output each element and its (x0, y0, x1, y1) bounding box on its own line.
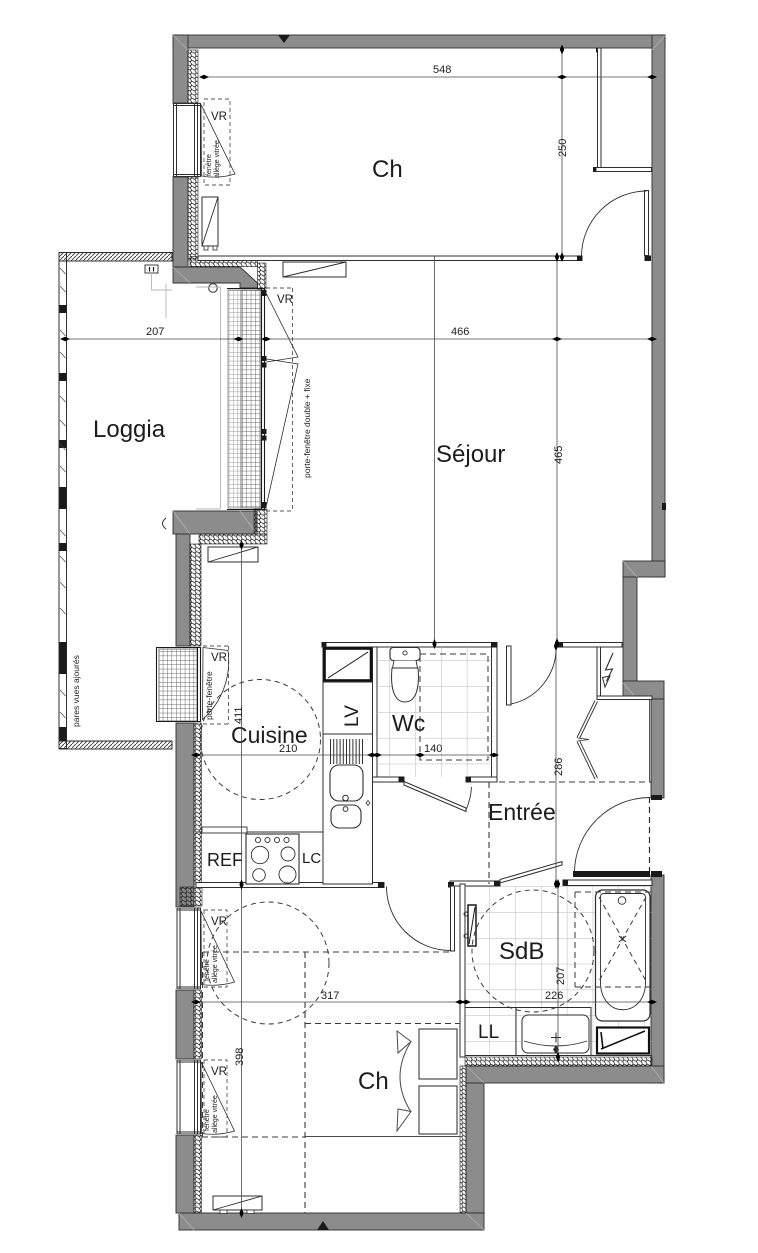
svg-text:140: 140 (424, 743, 442, 755)
svg-text:porte-fenêtre double + fixe: porte-fenêtre double + fixe (302, 378, 312, 478)
svg-text:LL: LL (478, 1022, 499, 1043)
svg-text:allège vitrée: allège vitrée (212, 945, 219, 983)
svg-text:465: 465 (553, 446, 565, 464)
svg-text:fenêtre: fenêtre (206, 154, 213, 176)
svg-text:pares vues ajourés: pares vues ajourés (71, 655, 81, 727)
svg-text:207: 207 (555, 967, 567, 985)
svg-text:LV: LV (342, 705, 363, 727)
svg-text:Loggia: Loggia (93, 416, 166, 443)
svg-text:286: 286 (553, 758, 565, 776)
svg-text:VR: VR (211, 916, 227, 928)
svg-text:VR: VR (211, 652, 227, 664)
svg-text:Ch: Ch (372, 156, 403, 183)
svg-text:VR: VR (277, 294, 293, 306)
svg-text:398: 398 (234, 1048, 246, 1066)
svg-text:Wc: Wc (392, 710, 425, 736)
svg-text:250: 250 (557, 139, 569, 157)
svg-text:allège vitrée: allège vitrée (212, 1095, 219, 1133)
svg-text:548: 548 (433, 64, 451, 76)
svg-text:VR: VR (211, 1066, 227, 1078)
svg-text:210: 210 (279, 743, 297, 755)
svg-text:226: 226 (545, 990, 563, 1002)
svg-text:Entrée: Entrée (488, 799, 556, 825)
svg-text:411: 411 (233, 706, 245, 724)
svg-text:allège vitrée: allège vitrée (214, 140, 221, 178)
svg-text:fenêtre: fenêtre (204, 1109, 211, 1131)
svg-text:317: 317 (321, 990, 339, 1002)
svg-text:Ch: Ch (358, 1068, 389, 1095)
svg-text:REF: REF (207, 850, 243, 870)
svg-text:207: 207 (146, 326, 164, 338)
svg-text:466: 466 (451, 326, 469, 338)
svg-text:VR: VR (211, 111, 227, 123)
svg-text:porte-fenêtre: porte-fenêtre (204, 671, 214, 720)
svg-text:Séjour: Séjour (436, 441, 505, 468)
svg-text:SdB: SdB (499, 938, 544, 965)
svg-text:LC: LC (302, 850, 321, 867)
